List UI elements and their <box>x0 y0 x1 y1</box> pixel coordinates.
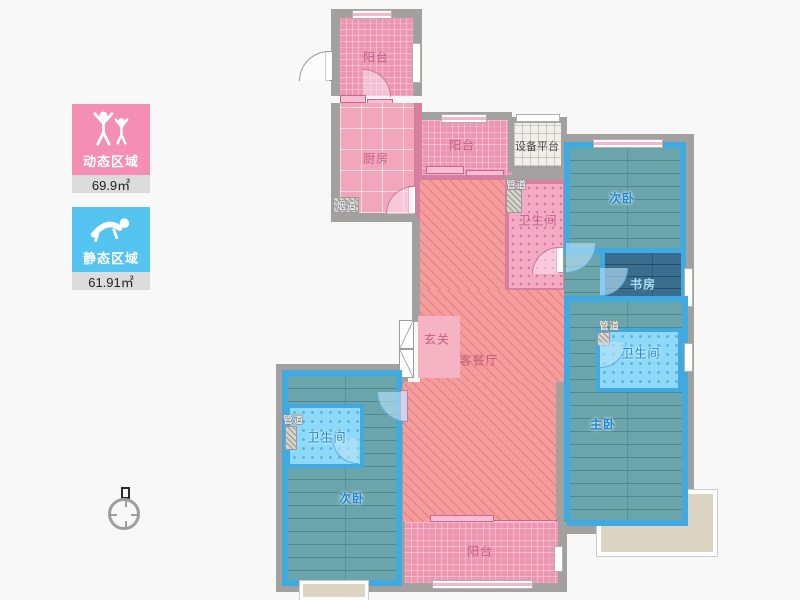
legend-static-label: 静态区域 <box>83 248 139 267</box>
compass-icon <box>108 498 140 530</box>
compass-tick-east <box>131 514 137 516</box>
legend-dynamic-header: 动态区域 <box>72 104 150 175</box>
window-balcony-top <box>352 10 392 19</box>
label-kitchen: 厨房 <box>363 150 389 167</box>
dynamic-area-icon <box>88 104 134 151</box>
compass-tick-west <box>111 514 117 516</box>
label-flue: 烟道 <box>336 198 356 213</box>
label-living-dining: 客餐厅 <box>459 352 498 369</box>
legend-dynamic-label: 动态区域 <box>83 151 139 170</box>
legend-static-header: 静态区域 <box>72 207 150 272</box>
label-bath-left: 卫生间 <box>307 429 346 446</box>
sliding-door-balcony-kitchen-1 <box>340 95 366 103</box>
label-study: 书房 <box>630 276 656 293</box>
window-balcony-mid <box>441 114 487 123</box>
window-equipment-platform <box>516 114 560 122</box>
label-duct-right: 管道 <box>599 318 619 333</box>
floorplan-canvas: 动态区域 69.9㎡ 静态区域 61.91㎡ <box>0 0 800 600</box>
window-balcony-bottom <box>432 580 533 589</box>
room-living-upper <box>420 175 505 290</box>
duct-top-shaft <box>506 189 522 213</box>
legend-static-value: 61.91㎡ <box>72 272 150 290</box>
label-foyer: 玄关 <box>424 331 450 348</box>
duct-left-shaft <box>285 426 297 450</box>
compass-tick-south <box>125 521 127 527</box>
sliding-window-balcony-mid-1 <box>426 166 464 174</box>
static-area-icon <box>88 207 134 248</box>
legend-static-card: 静态区域 61.91㎡ <box>72 207 150 290</box>
sliding-door-living-balcony-1 <box>430 515 494 522</box>
label-balcony-top: 阳台 <box>363 49 389 66</box>
bay-window-bedroom-bottom <box>300 581 368 600</box>
window-bedroom-top <box>593 139 663 148</box>
label-master-bedroom: 主卧 <box>590 416 616 433</box>
label-bedroom-bottom: 次卧 <box>339 490 365 507</box>
legend-dynamic-card: 动态区域 69.9㎡ <box>72 104 150 193</box>
window-balcony-top-right <box>412 43 421 83</box>
room-living-lower <box>403 382 556 522</box>
window-balcony-bottom-right <box>554 546 563 572</box>
label-bedroom-top: 次卧 <box>609 190 635 207</box>
compass-tick-north <box>125 501 127 507</box>
door-arc-balcony-top <box>299 51 329 81</box>
entry-door-leaf-top <box>399 320 414 349</box>
label-balcony-bottom: 阳台 <box>467 543 493 560</box>
label-duct-left: 管道 <box>283 412 303 427</box>
label-equipment-platform: 设备平台 <box>515 138 559 154</box>
label-duct-top: 管道 <box>506 177 526 192</box>
label-bath-right: 卫生间 <box>621 345 660 362</box>
window-bath-right <box>684 343 693 372</box>
label-bath-top: 卫生间 <box>518 212 557 229</box>
label-balcony-mid: 阳台 <box>449 137 475 154</box>
legend-dynamic-value: 69.9㎡ <box>72 175 150 193</box>
